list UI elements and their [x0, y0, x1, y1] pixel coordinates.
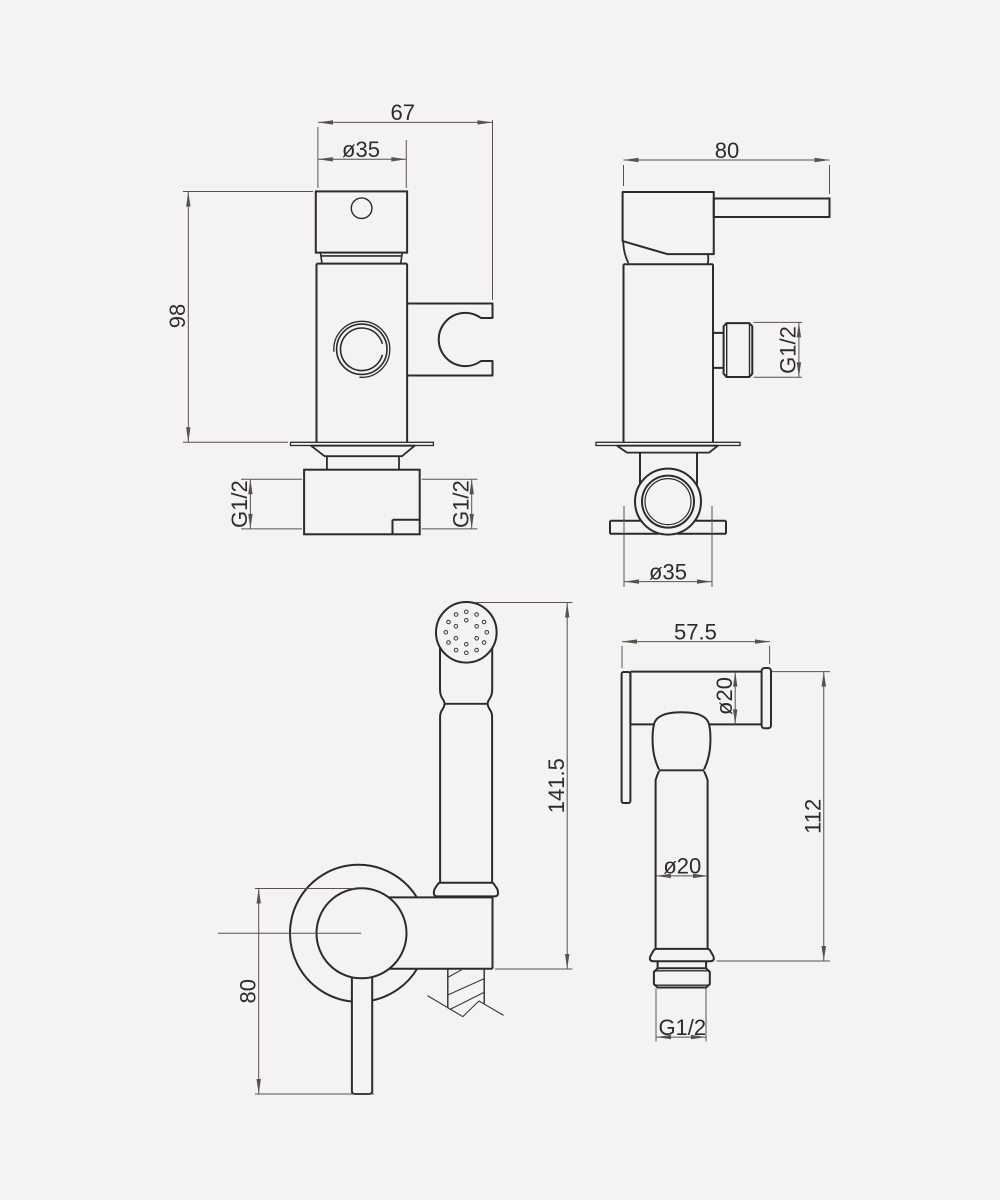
svg-text:G1/2: G1/2 [448, 480, 473, 528]
svg-text:141.5: 141.5 [544, 758, 569, 813]
svg-text:ø20: ø20 [712, 677, 737, 715]
svg-text:67: 67 [391, 100, 415, 125]
svg-text:ø20: ø20 [663, 854, 701, 879]
svg-text:57.5: 57.5 [674, 619, 717, 644]
svg-text:112: 112 [800, 799, 825, 834]
svg-text:98: 98 [165, 304, 190, 328]
svg-text:G1/2: G1/2 [227, 480, 252, 528]
svg-text:G1/2: G1/2 [776, 326, 801, 374]
svg-text:ø35: ø35 [342, 137, 380, 162]
svg-text:80: 80 [235, 979, 260, 1003]
svg-text:G1/2: G1/2 [658, 1015, 706, 1040]
svg-text:ø35: ø35 [649, 559, 687, 584]
svg-text:80: 80 [715, 138, 739, 163]
